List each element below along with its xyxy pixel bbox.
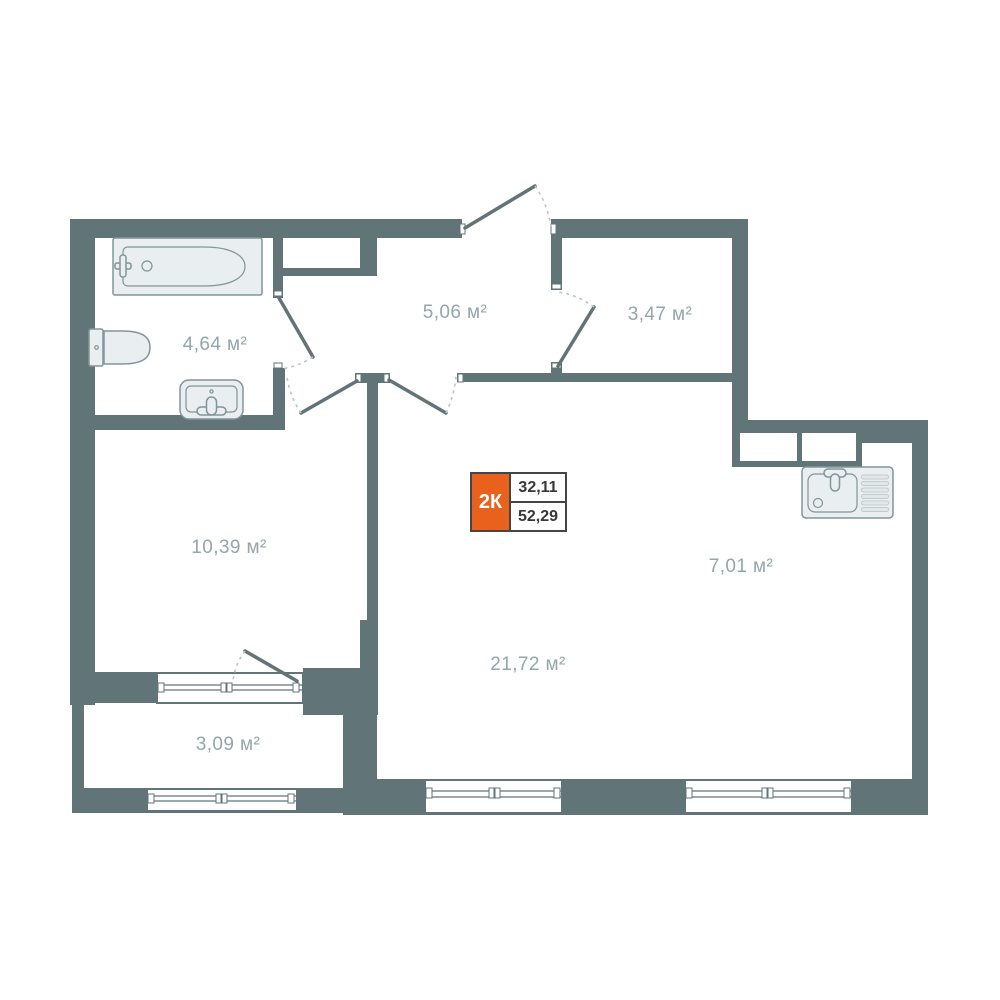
room-label-balcony: 3,09 м² — [196, 734, 260, 755]
total-area-value: 52,29 — [511, 503, 565, 530]
wall-segment — [551, 219, 748, 238]
wall-segment — [70, 219, 95, 705]
living-room-door — [384, 374, 463, 413]
window-balcony — [147, 789, 297, 811]
washbasin-icon — [180, 380, 243, 419]
apartment-areas: 32,11 52,29 — [509, 474, 565, 530]
bedroom-door — [287, 374, 361, 413]
apartment-type-label: 2К — [472, 474, 509, 530]
wall-segment — [360, 237, 377, 276]
wall-segment — [797, 433, 802, 461]
room-label-bedroom: 10,39 м² — [191, 537, 266, 558]
room-label-hallway: 5,06 м² — [423, 302, 487, 323]
kitchen-sink-icon — [802, 467, 893, 518]
room-label-bathroom: 4,64 м² — [183, 334, 247, 355]
window-living-left — [425, 780, 562, 813]
room-label-storage: 3,47 м² — [628, 304, 692, 325]
wall-segment — [367, 383, 378, 620]
wall-segment — [70, 219, 462, 238]
living-area-value: 32,11 — [511, 474, 565, 503]
toilet-icon — [89, 329, 150, 366]
wall-segment — [457, 373, 732, 382]
room-label-living: 21,72 м² — [490, 654, 565, 675]
bathroom-door — [274, 291, 313, 369]
wall-segment — [732, 461, 862, 467]
wall-segment — [856, 433, 862, 461]
entrance-door — [460, 186, 556, 234]
apartment-type-badge: 2К 32,11 52,29 — [470, 472, 567, 532]
balcony-door-window-unit — [157, 673, 303, 703]
wall-segment — [70, 415, 285, 430]
bathtub-icon — [113, 238, 262, 295]
floor-plan-canvas: 4,64 м² 5,06 м² 3,47 м² 10,39 м² 21,72 м… — [0, 0, 1000, 1000]
wall-segment — [273, 237, 283, 298]
storage-door — [552, 284, 594, 368]
wall-segment — [732, 219, 748, 420]
doors — [233, 186, 594, 681]
wall-segment — [732, 433, 740, 461]
wall-segment — [360, 620, 378, 672]
wall-segment — [70, 672, 157, 703]
room-label-kitchen: 7,01 м² — [709, 556, 773, 577]
window-living-right — [685, 780, 852, 813]
wall-segment — [912, 433, 928, 815]
wall-segment — [551, 237, 562, 290]
wall-segment — [732, 420, 928, 433]
